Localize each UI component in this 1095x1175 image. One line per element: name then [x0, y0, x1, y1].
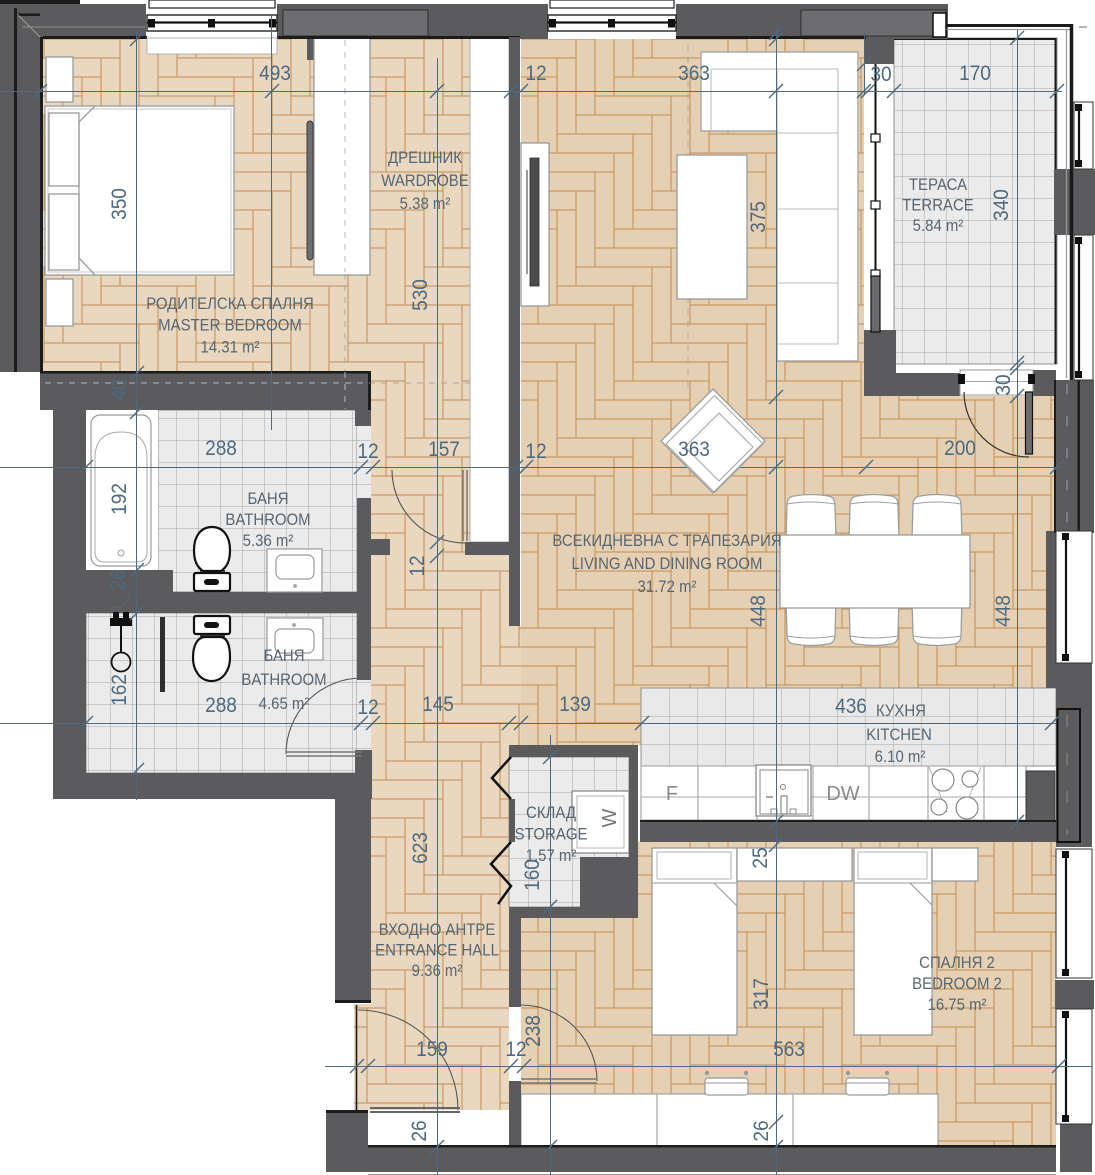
svg-text:WARDROBE: WARDROBE: [381, 172, 468, 190]
svg-text:STORAGE: STORAGE: [515, 826, 588, 844]
svg-text:340: 340: [990, 189, 1013, 221]
svg-text:СПАЛНЯ 2: СПАЛНЯ 2: [919, 954, 995, 972]
svg-text:ДРЕШНИК: ДРЕШНИК: [388, 149, 463, 167]
svg-text:14.31 m²: 14.31 m²: [201, 339, 261, 357]
svg-text:1.57 m²: 1.57 m²: [526, 847, 577, 865]
svg-text:145: 145: [422, 693, 454, 716]
svg-text:493: 493: [259, 62, 291, 85]
svg-text:BEDROOM 2: BEDROOM 2: [912, 975, 1002, 993]
svg-text:12: 12: [357, 440, 378, 463]
svg-text:DW: DW: [826, 783, 859, 805]
svg-text:157: 157: [428, 438, 460, 461]
svg-text:30: 30: [870, 63, 891, 86]
svg-text:623: 623: [409, 832, 432, 864]
svg-text:288: 288: [205, 694, 237, 717]
svg-text:TERRACE: TERRACE: [902, 197, 973, 215]
svg-text:288: 288: [205, 437, 237, 460]
svg-text:363: 363: [678, 62, 710, 85]
svg-text:375: 375: [747, 201, 770, 233]
svg-text:F: F: [666, 783, 678, 805]
svg-text:363: 363: [678, 438, 710, 461]
svg-text:6.10 m²: 6.10 m²: [875, 748, 926, 766]
svg-text:4.65 m²: 4.65 m²: [259, 695, 310, 713]
svg-text:25: 25: [749, 847, 772, 868]
svg-text:170: 170: [959, 62, 991, 85]
svg-text:БАНЯ: БАНЯ: [247, 490, 288, 508]
svg-text:238: 238: [522, 1015, 545, 1047]
svg-text:563: 563: [773, 1038, 805, 1061]
svg-text:350: 350: [108, 188, 131, 220]
svg-text:40: 40: [108, 379, 131, 400]
svg-text:317: 317: [750, 978, 773, 1010]
svg-text:ТЕРАСА: ТЕРАСА: [909, 176, 967, 194]
svg-text:159: 159: [416, 1038, 448, 1061]
svg-text:BATHROOM: BATHROOM: [241, 671, 326, 689]
svg-text:5.36 m²: 5.36 m²: [243, 532, 294, 550]
svg-text:LIVING AND DINING ROOM: LIVING AND DINING ROOM: [571, 555, 762, 573]
svg-text:192: 192: [108, 483, 131, 515]
svg-text:26: 26: [750, 1120, 773, 1141]
svg-text:200: 200: [944, 437, 976, 460]
svg-text:ВХОДНО АНТРЕ: ВХОДНО АНТРЕ: [379, 921, 496, 939]
svg-text:5.38 m²: 5.38 m²: [400, 195, 451, 213]
svg-text:162: 162: [108, 674, 131, 706]
svg-text:12: 12: [406, 555, 429, 576]
svg-text:12: 12: [525, 440, 546, 463]
svg-text:530: 530: [409, 279, 432, 311]
svg-text:MASTER BEDROOM: MASTER BEDROOM: [158, 317, 302, 335]
svg-text:ENTRANCE HALL: ENTRANCE HALL: [375, 942, 499, 960]
svg-text:26: 26: [408, 1120, 431, 1141]
svg-text:КУХНЯ: КУХНЯ: [876, 702, 926, 720]
svg-text:26: 26: [107, 569, 130, 590]
svg-text:31.72 m²: 31.72 m²: [638, 578, 698, 596]
svg-text:16.75 m²: 16.75 m²: [928, 996, 988, 1014]
svg-text:436: 436: [835, 695, 867, 718]
svg-text:30: 30: [992, 374, 1015, 395]
svg-text:СКЛАД: СКЛАД: [526, 804, 576, 822]
svg-text:12: 12: [525, 62, 546, 85]
svg-text:W: W: [599, 808, 621, 827]
svg-text:5.84 m²: 5.84 m²: [913, 217, 964, 235]
svg-text:KITCHEN: KITCHEN: [866, 726, 932, 744]
svg-text:БАНЯ: БАНЯ: [263, 647, 304, 665]
svg-text:448: 448: [992, 595, 1015, 627]
svg-text:9.36 m²: 9.36 m²: [412, 962, 463, 980]
svg-text:448: 448: [747, 595, 770, 627]
svg-text:139: 139: [559, 693, 591, 716]
svg-text:РОДИТЕЛСКА СПАЛНЯ: РОДИТЕЛСКА СПАЛНЯ: [146, 295, 314, 313]
svg-text:12: 12: [357, 696, 378, 719]
svg-text:BATHROOM: BATHROOM: [225, 511, 310, 529]
svg-text:ВСЕКИДНЕВНА С ТРАПЕЗАРИЯ: ВСЕКИДНЕВНА С ТРАПЕЗАРИЯ: [552, 532, 781, 550]
